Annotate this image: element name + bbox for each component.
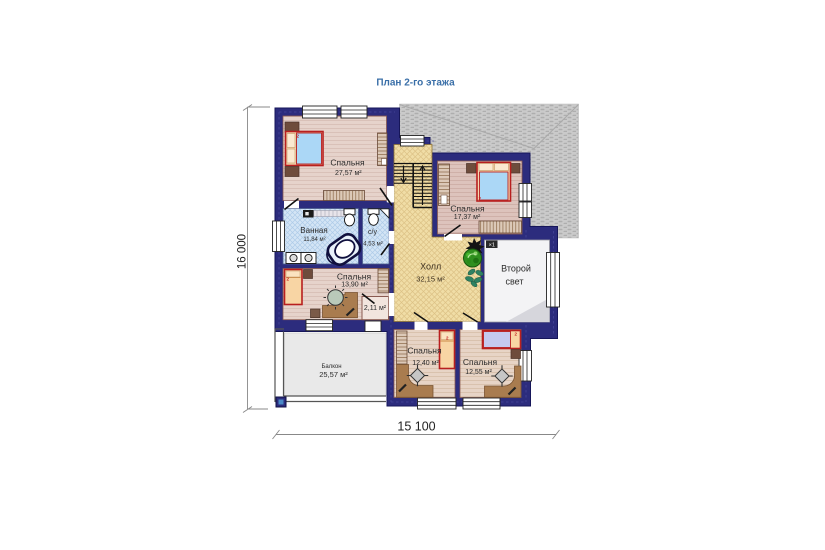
svg-text:13,90 м²: 13,90 м² (341, 282, 368, 289)
svg-text:Спальня: Спальня (450, 204, 485, 214)
svg-text:Холл: Холл (420, 262, 441, 272)
svg-text:12,55 м²: 12,55 м² (465, 369, 492, 376)
svg-text:32,15 м²: 32,15 м² (416, 274, 445, 283)
svg-text:Спальня: Спальня (463, 357, 498, 367)
svg-text:4,53 м²: 4,53 м² (363, 241, 382, 247)
svg-text:Спальня: Спальня (330, 158, 365, 168)
svg-text:15 100: 15 100 (397, 420, 435, 434)
svg-text:17,37 м²: 17,37 м² (454, 214, 481, 221)
svg-text:Второй: Второй (501, 264, 531, 274)
svg-text:с/у: с/у (368, 229, 377, 236)
svg-text:25,57 м²: 25,57 м² (319, 370, 348, 379)
svg-text:свет: свет (505, 277, 523, 287)
svg-text:Ванная: Ванная (300, 226, 327, 235)
svg-text:11,84 м²: 11,84 м² (303, 237, 325, 243)
svg-text:План 2-го этажа: План 2-го этажа (376, 78, 455, 89)
svg-text:16 000: 16 000 (237, 234, 249, 269)
svg-text:12,40 м²: 12,40 м² (412, 360, 439, 367)
svg-text:Спальня: Спальня (337, 272, 372, 282)
svg-text:Спальня: Спальня (407, 346, 442, 356)
svg-text:2,11 м²: 2,11 м² (364, 305, 387, 312)
svg-text:×1: ×1 (489, 242, 495, 248)
svg-text:27,57 м²: 27,57 м² (335, 170, 362, 177)
